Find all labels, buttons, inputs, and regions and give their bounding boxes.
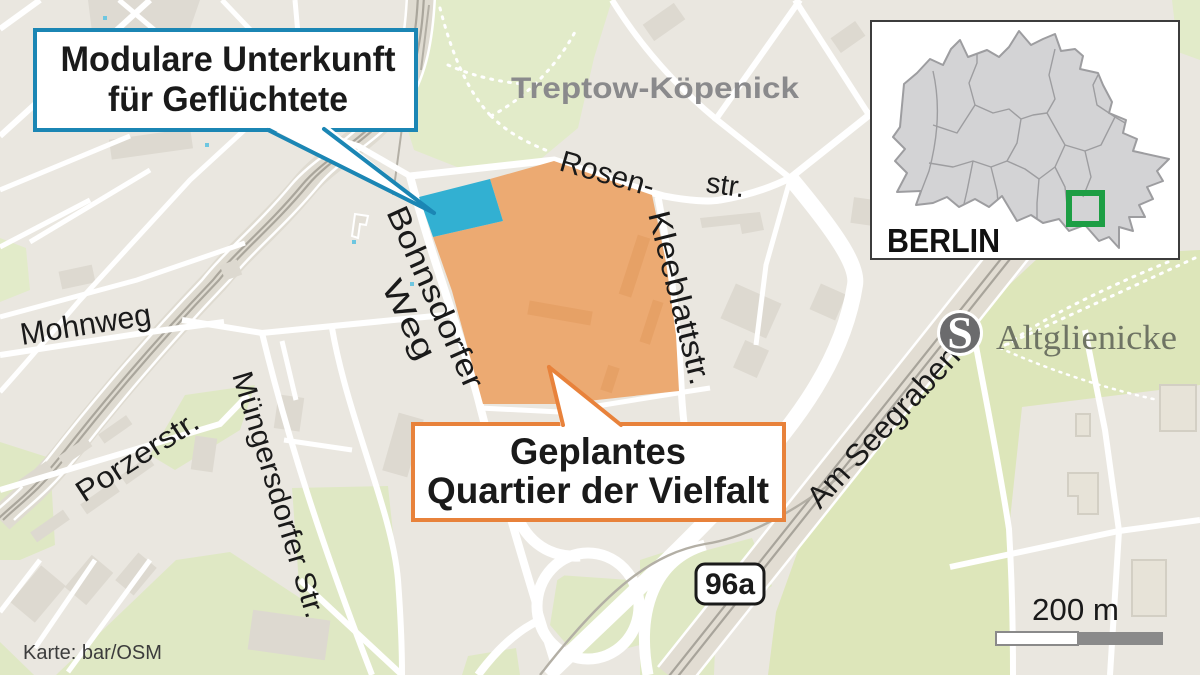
svg-text:96a: 96a <box>705 568 755 601</box>
svg-text:Quartier der Vielfalt: Quartier der Vielfalt <box>427 470 769 511</box>
svg-text:S: S <box>947 307 973 358</box>
svg-text:BERLIN: BERLIN <box>887 222 1000 259</box>
svg-text:Altglienicke: Altglienicke <box>996 318 1177 357</box>
svg-text:für Geflüchtete: für Geflüchtete <box>108 80 348 119</box>
svg-text:Treptow-Köpenick: Treptow-Köpenick <box>511 72 799 105</box>
svg-text:200 m: 200 m <box>1032 592 1119 627</box>
svg-text:Karte: bar/OSM: Karte: bar/OSM <box>23 642 162 664</box>
svg-text:Modulare Unterkunft: Modulare Unterkunft <box>61 40 396 79</box>
svg-text:Geplantes: Geplantes <box>510 431 686 472</box>
svg-text:str.: str. <box>704 167 747 204</box>
